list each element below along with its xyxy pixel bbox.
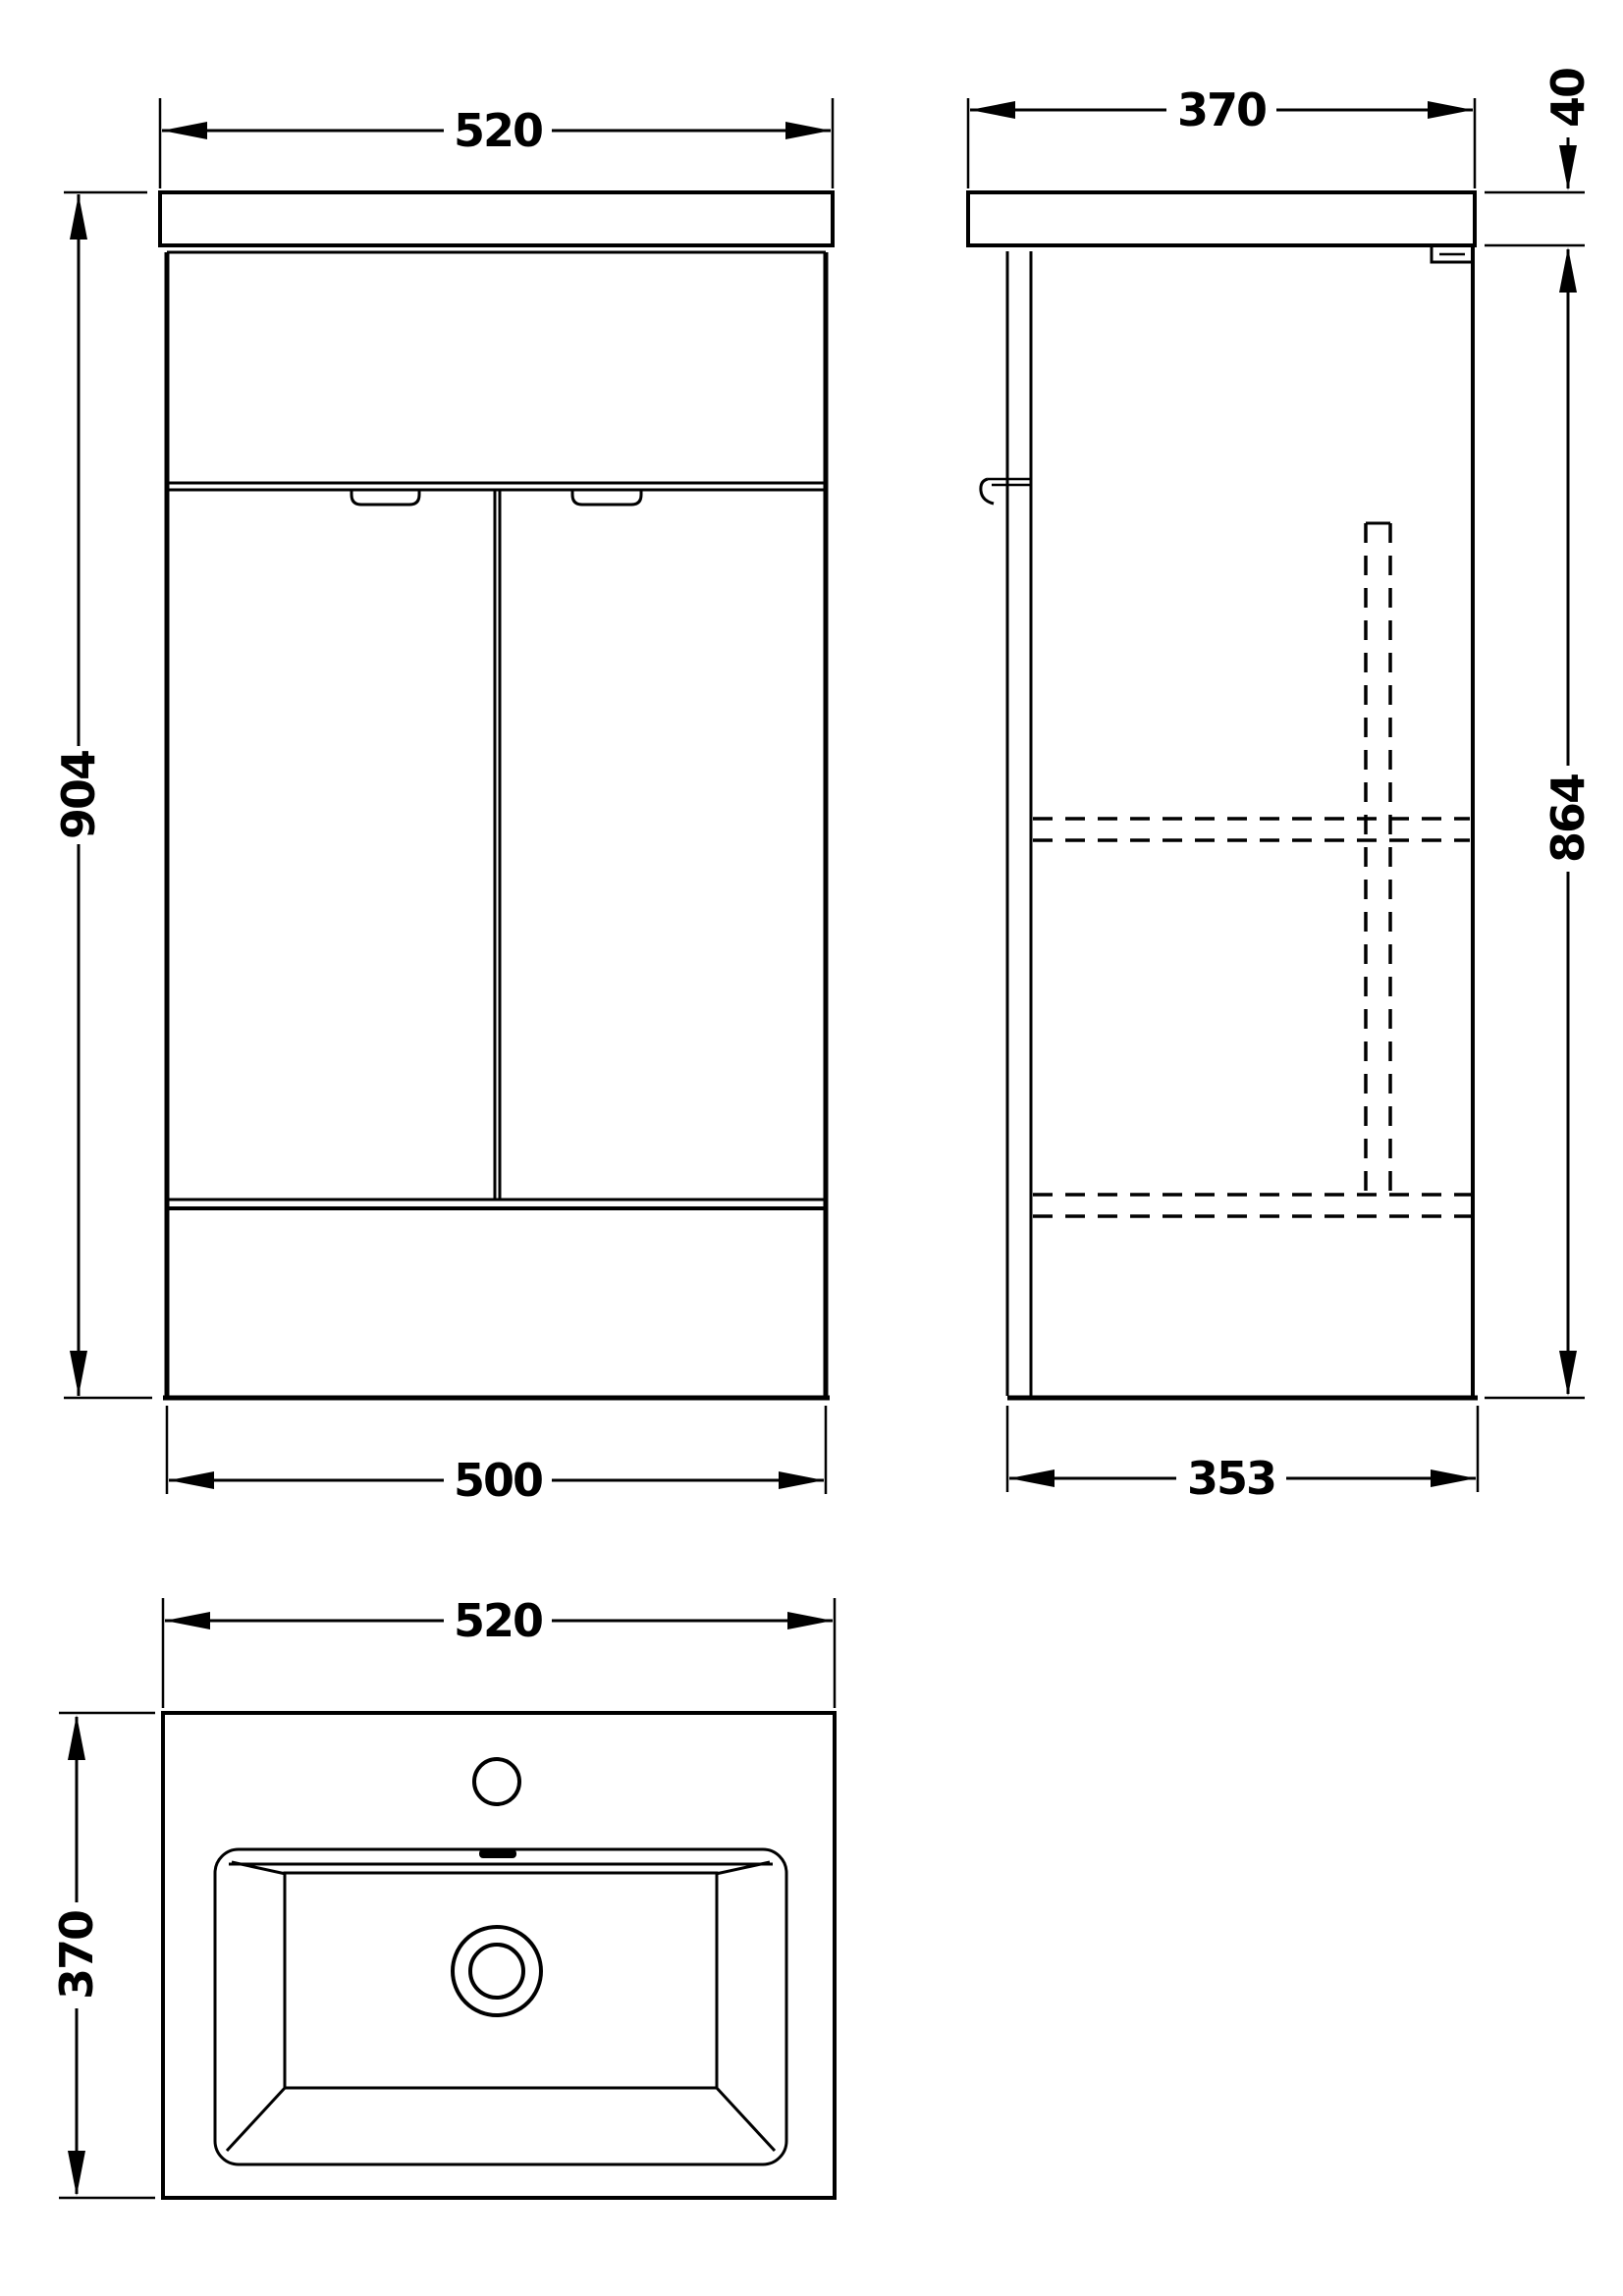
arrow-right [787, 1612, 833, 1629]
plan-bowl-slope-bottom-right [716, 2087, 775, 2151]
plan-bowl-bottom [285, 1873, 717, 2088]
dim-label-front-width: 520 [454, 104, 542, 157]
arrow-down [70, 1351, 87, 1396]
arrow-right [1428, 101, 1473, 119]
arrow-up [70, 194, 87, 240]
arrow-right [785, 122, 831, 139]
dim-label-plan-width: 520 [454, 1594, 542, 1647]
technical-drawing: 520 904 500 [0, 0, 1623, 2296]
front-left-door-handle [352, 490, 419, 505]
arrow-right [779, 1471, 824, 1489]
plan-view [163, 1713, 835, 2198]
dim-side-depth-bottom: 353 [1007, 1406, 1478, 1505]
plan-bowl-slope-bottom-left [227, 2087, 286, 2151]
front-counter-top [160, 192, 833, 245]
plan-tap-hole [474, 1759, 519, 1804]
arrow-left [169, 1471, 214, 1489]
plan-waste-inner [470, 1945, 523, 1998]
plan-basin-outline [163, 1713, 835, 2198]
dim-label-front-width-bottom: 500 [454, 1454, 542, 1507]
arrow-up [68, 1715, 85, 1760]
dim-counter-thickness: 40 [1485, 69, 1595, 245]
arrow-right [1431, 1469, 1476, 1487]
arrow-left [162, 122, 207, 139]
arrow-left [970, 101, 1015, 119]
dim-cabinet-height: 864 [1485, 247, 1595, 1398]
dim-label-cabinet-height: 864 [1542, 774, 1595, 863]
arrow-down [1559, 145, 1577, 190]
arrow-down [1559, 1351, 1577, 1396]
front-right-door-handle [572, 490, 641, 505]
arrow-up [1559, 247, 1577, 293]
dim-front-width-bottom: 500 [167, 1406, 826, 1507]
plan-waste-outer [453, 1927, 541, 2015]
dim-front-height: 904 [52, 192, 152, 1398]
dim-plan-width: 520 [163, 1594, 835, 1708]
drawing-sheet: 520 904 500 [0, 0, 1623, 2296]
dim-label-side-depth-bottom: 353 [1187, 1452, 1275, 1505]
plan-bowl-rim [215, 1849, 786, 2164]
side-bracket-hook [981, 479, 994, 504]
side-view [968, 192, 1478, 1398]
dim-label-front-height: 904 [52, 751, 105, 839]
dim-label-plan-depth: 370 [50, 1911, 103, 2000]
dim-label-side-depth: 370 [1177, 83, 1266, 136]
dim-front-width: 520 [160, 98, 833, 188]
arrow-left [165, 1612, 210, 1629]
side-counter-top [968, 192, 1475, 245]
arrow-left [1009, 1469, 1055, 1487]
arrow-down [68, 2151, 85, 2196]
dim-label-counter-thickness: 40 [1542, 69, 1595, 128]
dim-plan-depth: 370 [50, 1713, 155, 2198]
front-view [160, 192, 833, 1398]
dim-side-depth: 370 [968, 83, 1475, 188]
